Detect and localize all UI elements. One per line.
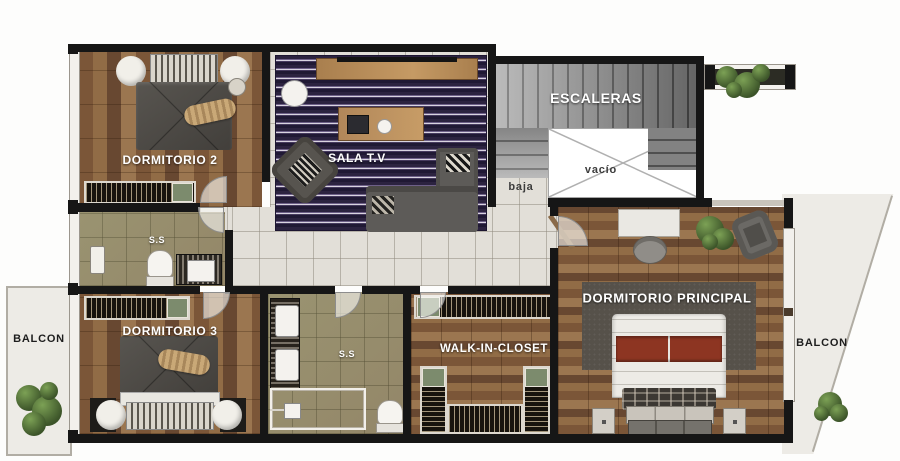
wall-light [712, 200, 786, 206]
wall [784, 400, 793, 443]
toilet-bowl [377, 400, 403, 425]
wall [362, 286, 420, 294]
wall [68, 430, 78, 443]
wall [72, 44, 496, 52]
label-dormitorio-principal: DORMITORIO PRINCIPAL [583, 291, 752, 306]
wall [488, 56, 704, 64]
sofa-pillow [372, 196, 394, 214]
wall [550, 248, 558, 442]
wall [72, 434, 792, 443]
label-baja: baja [508, 181, 533, 193]
wall [68, 200, 78, 214]
wall [68, 283, 78, 295]
window-wall-left [69, 46, 80, 443]
bed-pillow-strip [126, 402, 214, 430]
plant [830, 404, 848, 422]
plant [726, 82, 742, 98]
sink-basin [187, 260, 215, 282]
window-mullion [784, 308, 793, 316]
lounge-chair-seat [743, 222, 767, 247]
plate [377, 119, 392, 134]
label-balcon-left: BALCON [13, 333, 65, 345]
wall [548, 198, 712, 207]
nightstand-knob [602, 420, 606, 424]
stairs-left-run [494, 128, 548, 178]
desk-chair [633, 236, 667, 264]
sink-basin [275, 305, 299, 337]
double-bed [112, 336, 226, 432]
double-bed [132, 54, 236, 150]
double-vanity [270, 298, 300, 390]
label-ss-lower: S.S [339, 349, 355, 359]
label-ss-upper: S.S [149, 235, 165, 245]
stair-landing [492, 178, 548, 286]
tv-console [316, 58, 478, 80]
label-escaleras: ESCALERAS [550, 90, 642, 106]
sink-basin [275, 349, 299, 381]
sofa-pillow [446, 154, 470, 172]
label-sala-tv: SALA T.V [328, 151, 386, 165]
walkin-closet-bottom [447, 404, 523, 434]
wall [696, 56, 704, 207]
bed-round-pillow [212, 400, 242, 430]
label-balcon-right: BALCON [796, 337, 848, 349]
label-dormitorio3: DORMITORIO 3 [123, 324, 218, 338]
round-side-table [281, 80, 308, 107]
toilet [146, 250, 172, 286]
wall [232, 286, 335, 294]
planter-cap [785, 65, 795, 89]
laptop [347, 115, 369, 134]
wall [72, 286, 200, 294]
bed-round-pillow [96, 400, 126, 430]
desk [618, 209, 680, 237]
wall [488, 44, 496, 207]
toilet [376, 400, 402, 432]
vanity-sink [176, 254, 222, 285]
nightstand-knob [733, 420, 737, 424]
wall [262, 44, 270, 182]
shower-head [284, 403, 301, 419]
armchair-pillow [288, 153, 322, 187]
label-vacio: vacío [585, 164, 617, 176]
shower [270, 388, 366, 430]
label-dormitorio2: DORMITORIO 2 [123, 153, 218, 167]
wall [225, 230, 233, 294]
closet-cabinet [172, 183, 193, 202]
wall [784, 198, 793, 228]
floor-plan: DORMITORIO 2 SALA T.V ESCALERAS vacío ba… [0, 0, 900, 461]
toilet-bowl [147, 250, 173, 278]
plant [702, 234, 718, 250]
bed-red-stripe [616, 336, 722, 362]
coffee-table [338, 107, 424, 141]
stairs-right-run [648, 128, 698, 170]
side-table [228, 78, 246, 96]
toilet-tank [376, 423, 404, 433]
shower-arm [270, 409, 284, 411]
wall [72, 203, 200, 212]
label-walk-in-closet: WALK-IN-CLOSET [440, 343, 548, 355]
planter-cap [705, 65, 715, 89]
floor-lamp [90, 246, 105, 274]
plant [40, 382, 58, 400]
wall [403, 292, 411, 442]
tv-screen [337, 57, 457, 62]
wall [68, 44, 78, 54]
plant [814, 406, 829, 421]
wall [448, 286, 558, 294]
plant [752, 64, 770, 82]
closet-cabinet [422, 368, 445, 387]
closet-cabinet [167, 298, 188, 318]
main-bed [610, 314, 728, 434]
closet-cabinet [525, 368, 548, 387]
plant [22, 412, 46, 436]
wall [260, 292, 268, 442]
